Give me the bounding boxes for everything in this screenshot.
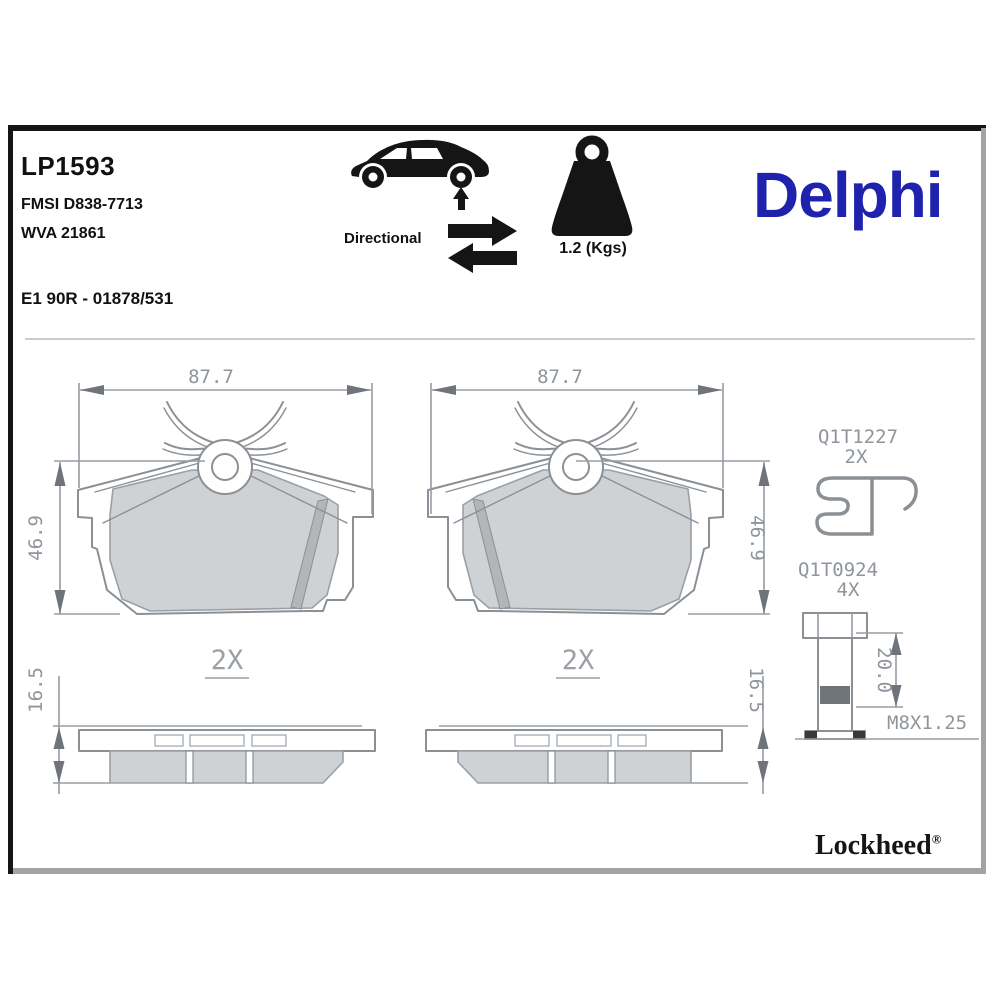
left-pad-height-value: 46.9 [25,515,47,561]
lockheed-logo: Lockheed® [815,830,941,862]
right-pad-quantity: 2X [556,645,600,678]
bolt-drawing: Q1T0924 4X 20.0 M8X1.25 [795,559,979,739]
registered-mark: ® [932,832,942,847]
directional-arrows-icon [448,216,517,273]
svg-text:2X: 2X [562,645,595,676]
brake-pad-datasheet: LP1593 FMSI D838-7713 WVA 21861 E1 90R -… [0,0,1000,1000]
bolt-quantity: 4X [837,579,860,601]
clip-code: Q1T1227 [818,426,898,448]
right-pad-width-value: 87.7 [537,366,583,388]
pad-front-view-right [428,402,723,614]
bolt-length-value: 20.0 [873,647,895,693]
lockheed-brand-text: Lockheed [815,830,932,861]
right-pad-thickness-value: 16.5 [745,667,767,713]
clip-quantity: 2X [845,446,868,468]
left-pad-thickness-value: 16.5 [25,667,47,713]
weight-icon [552,140,633,236]
thread-spec: M8X1.25 [887,712,967,734]
pad-front-view-left [78,402,373,614]
svg-text:2X: 2X [211,645,244,676]
pad-side-view-right [426,726,748,783]
left-pad-width-value: 87.7 [188,366,234,388]
car-rear-axle-icon [351,140,489,210]
left-pad-thickness-dimension: 16.5 [25,667,65,794]
clip-drawing: Q1T1227 2X [817,426,916,534]
bolt-code: Q1T0924 [798,559,878,581]
right-pad-height-value: 46.9 [746,515,768,561]
pad-side-view-left [53,726,375,783]
right-pad-thickness-dimension: 16.5 [745,667,769,794]
left-pad-quantity: 2X [205,645,249,678]
bolt-length-dimension: 20.0 [856,633,903,707]
